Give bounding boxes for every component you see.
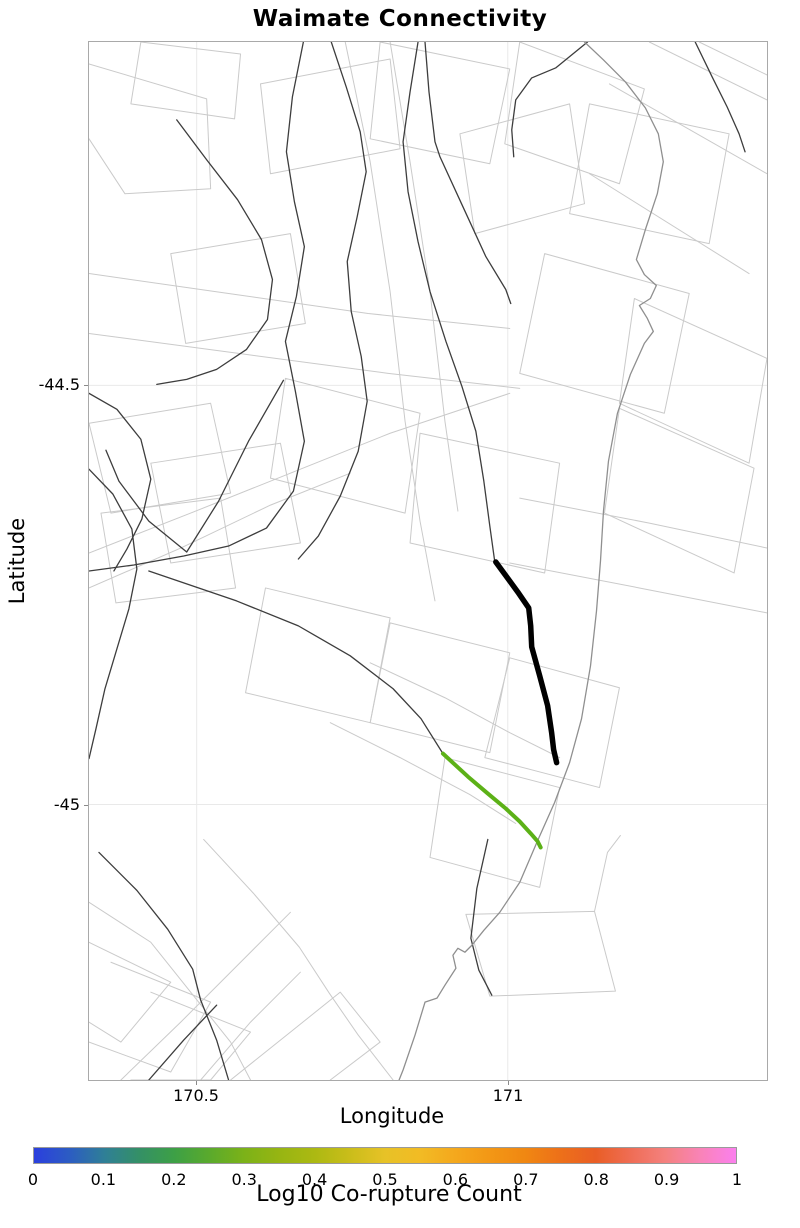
colorbar-gradient [33, 1147, 737, 1164]
fault-section-outline [390, 42, 458, 511]
y-axis-label: Latitude [5, 518, 29, 604]
fault-trace [99, 852, 229, 1080]
fault-section-outline [89, 403, 231, 513]
fault-section-outline [590, 174, 750, 274]
fault-section-outline [430, 758, 560, 888]
plot-area [88, 41, 768, 1081]
fault-section-outline [520, 254, 690, 414]
fault-section-outline [89, 942, 171, 1042]
map-canvas [89, 42, 767, 1080]
coastline [399, 42, 663, 1080]
colorbar-tick-label: 0.2 [161, 1170, 186, 1190]
figure: Waimate Connectivity Latitude Longitude … [0, 0, 800, 1228]
fault-section-outline [520, 498, 767, 548]
y-tick-label: -44.5 [0, 375, 80, 395]
fault-trace [298, 42, 367, 559]
fault-section-outline [89, 902, 251, 1080]
colorbar-tick-label: 0.9 [654, 1170, 679, 1190]
y-tick-label: -45 [0, 795, 80, 815]
plot-title: Waimate Connectivity [0, 6, 800, 32]
fault-section-outline [89, 64, 211, 194]
colorbar-tick-label: 0.1 [91, 1170, 116, 1190]
colorbar-tick-label: 0.7 [513, 1170, 538, 1190]
fault-section-outline [505, 42, 645, 184]
y-tick-mark [84, 805, 88, 806]
colorbar-tick-label: 0 [28, 1170, 38, 1190]
fault-section-outline [460, 104, 585, 234]
co-rupture-highlight [443, 754, 541, 848]
fault-section-outline [604, 408, 754, 573]
x-tick-label: 171 [493, 1086, 524, 1106]
fault-trace [512, 42, 588, 157]
colorbar-tick-label: 0.5 [372, 1170, 397, 1190]
fault-trace [403, 42, 495, 562]
fault-section-outline [246, 588, 391, 723]
colorbar-tick-label: 1 [732, 1170, 742, 1190]
fault-trace [149, 571, 443, 754]
fault-trace [471, 839, 492, 995]
fault-section-outline [89, 333, 520, 388]
fault-section-outline [595, 835, 621, 911]
colorbar-tick-label: 0.8 [583, 1170, 608, 1190]
fault-section-outline [619, 299, 767, 464]
fault-section-outline [570, 104, 730, 244]
fault-trace [425, 42, 511, 303]
x-tick-mark [508, 1081, 509, 1085]
fault-section-outline [609, 84, 767, 174]
fault-section-outline [410, 433, 560, 573]
fault-section-outline [231, 992, 381, 1080]
fault-section-outline [131, 42, 241, 119]
fault-section-outline [330, 723, 515, 824]
fault-section-outline [89, 393, 510, 553]
fault-section-outline [466, 911, 616, 996]
fault-trace [695, 42, 745, 152]
fault-section-outline [89, 962, 211, 1072]
fault-section-outline [370, 663, 559, 758]
x-tick-label: 170.5 [173, 1086, 219, 1106]
fault-section-outline [260, 59, 400, 174]
fault-section-outline [649, 42, 767, 100]
fault-section-outline [370, 42, 510, 164]
x-axis-label: Longitude [340, 1104, 444, 1128]
colorbar-tick-label: 0.6 [443, 1170, 468, 1190]
colorbar-tick-label: 0.3 [231, 1170, 256, 1190]
y-tick-mark [84, 385, 88, 386]
x-tick-mark [196, 1081, 197, 1085]
fault-section-outline [89, 473, 350, 588]
colorbar-tick-label: 0.4 [302, 1170, 327, 1190]
fault-section-outline [121, 912, 291, 1080]
